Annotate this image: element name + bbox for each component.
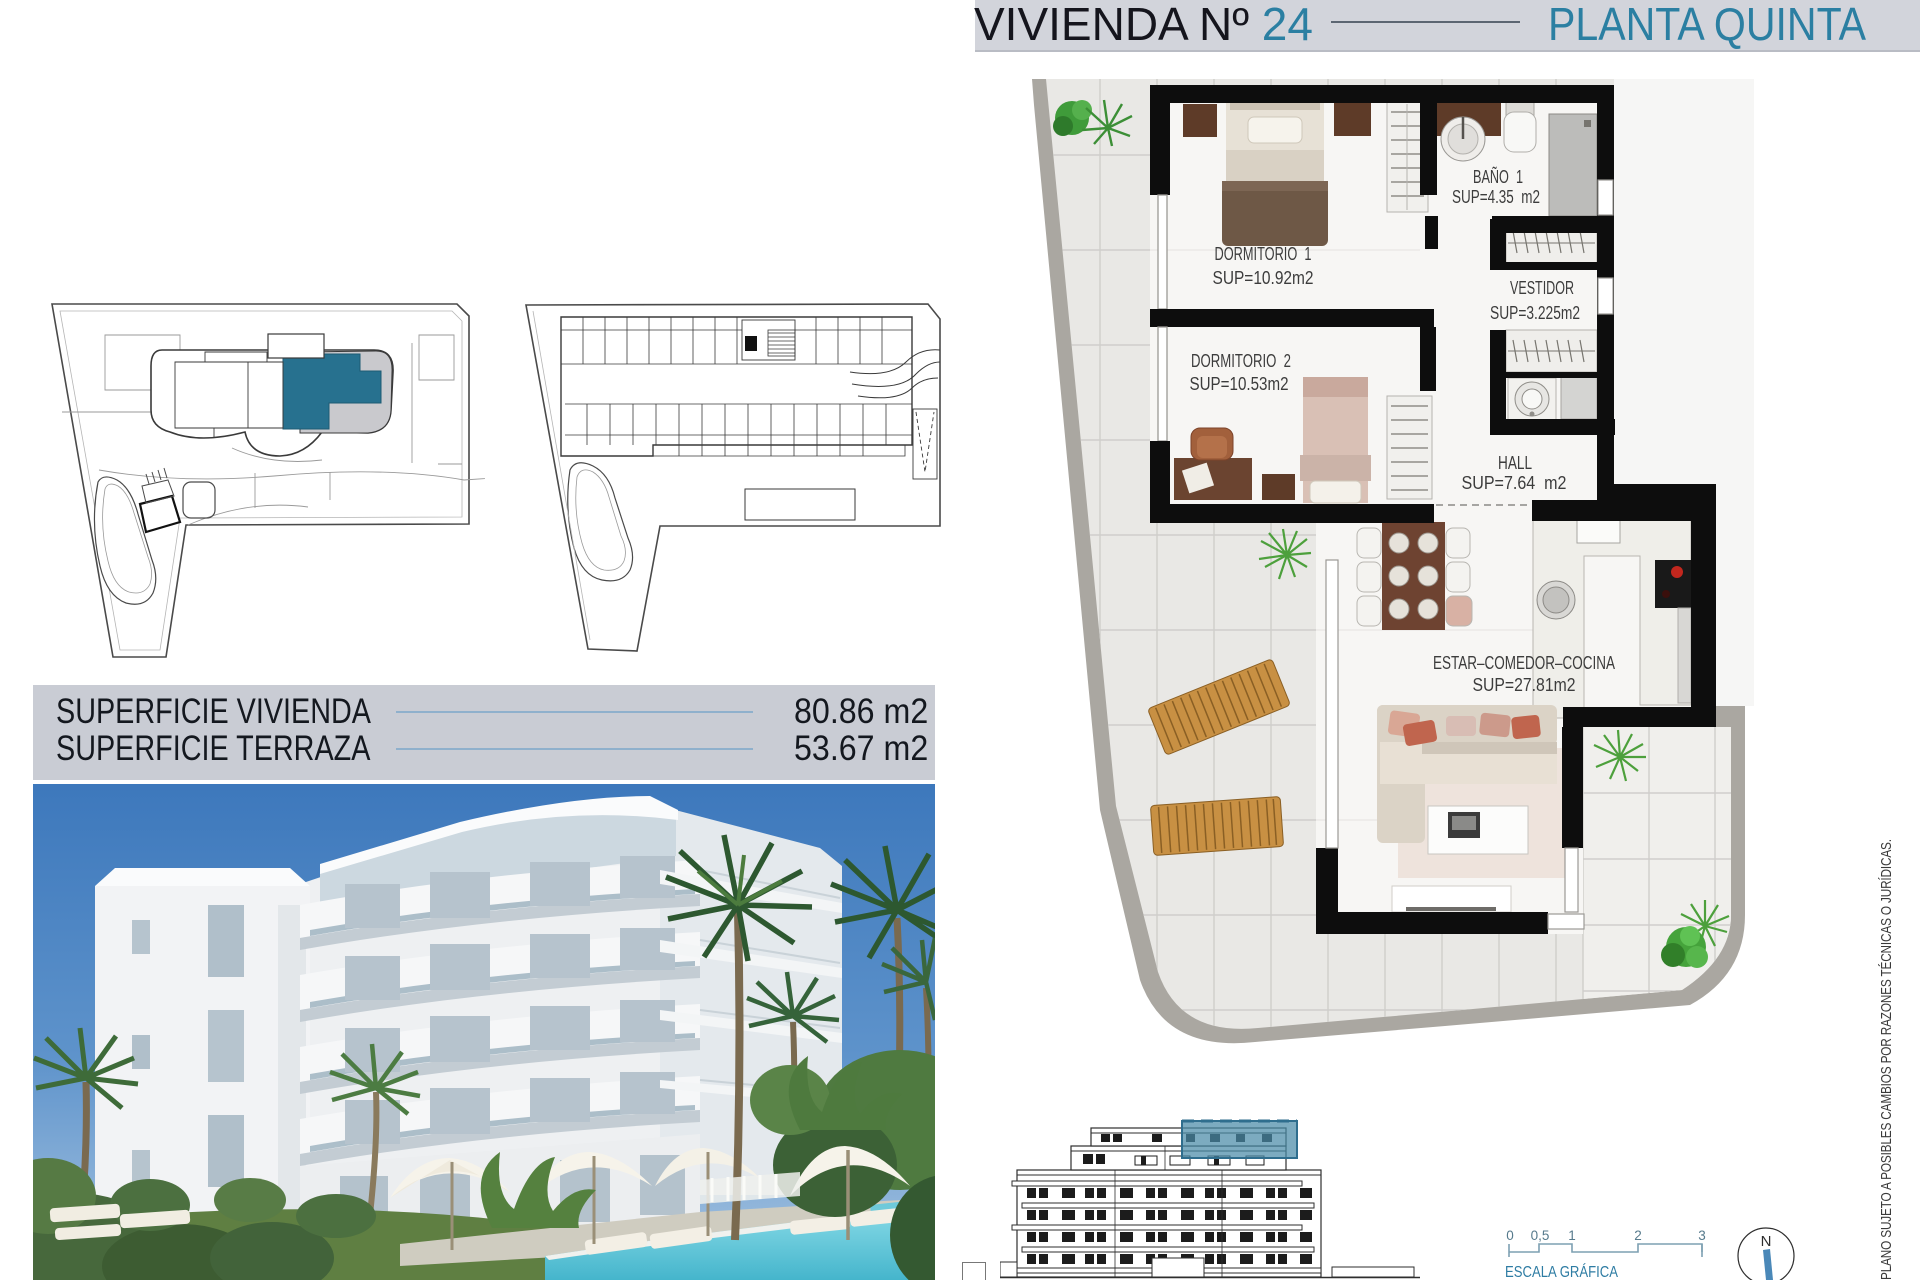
svg-text:SUP=27.81m2: SUP=27.81m2 — [1473, 674, 1576, 695]
svg-text:2: 2 — [1634, 1228, 1642, 1243]
svg-text:BAÑO 1: BAÑO 1 — [1473, 166, 1523, 187]
svg-text:N: N — [1761, 1233, 1772, 1250]
svg-text:SUP=10.92m2: SUP=10.92m2 — [1213, 267, 1314, 288]
svg-text:ESTAR–COMEDOR–COCINA: ESTAR–COMEDOR–COCINA — [1433, 652, 1615, 673]
svg-text:0,5: 0,5 — [1531, 1228, 1550, 1243]
svg-text:HALL: HALL — [1498, 452, 1532, 473]
svg-text:0: 0 — [1506, 1228, 1514, 1243]
svg-text:SUP=4.35 m2: SUP=4.35 m2 — [1452, 186, 1540, 207]
svg-text:ESCALA GRÁFICA: ESCALA GRÁFICA — [1505, 1264, 1619, 1280]
svg-text:SUP=7.64 m2: SUP=7.64 m2 — [1462, 472, 1567, 493]
svg-text:SUP=10.53m2: SUP=10.53m2 — [1190, 373, 1289, 394]
svg-text:1: 1 — [1568, 1228, 1576, 1243]
svg-text:DORMITORIO 1: DORMITORIO 1 — [1215, 243, 1312, 264]
svg-text:SUP=3.225m2: SUP=3.225m2 — [1490, 302, 1580, 323]
svg-text:VESTIDOR: VESTIDOR — [1510, 277, 1574, 298]
svg-text:3: 3 — [1698, 1228, 1706, 1243]
svg-text:DORMITORIO 2: DORMITORIO 2 — [1191, 350, 1291, 371]
